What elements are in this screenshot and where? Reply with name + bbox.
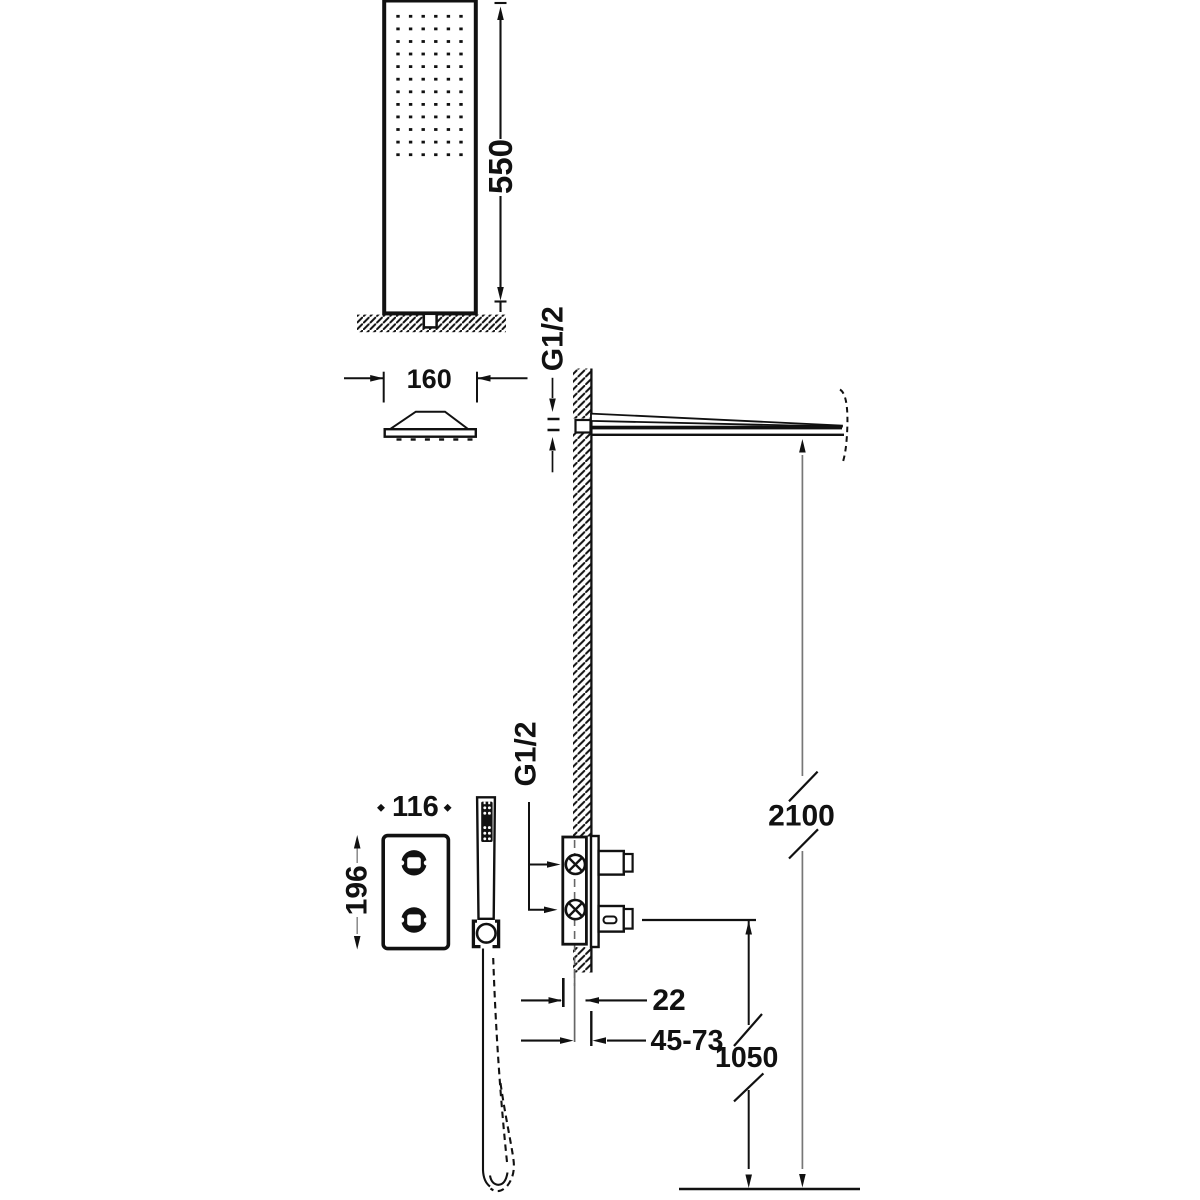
svg-text:45-73: 45-73	[651, 1025, 724, 1057]
svg-text:116: 116	[392, 791, 439, 823]
svg-text:22: 22	[652, 984, 685, 1017]
svg-text:G1/2: G1/2	[510, 721, 543, 786]
svg-text:550: 550	[482, 139, 519, 194]
svg-text:G1/2: G1/2	[537, 306, 570, 371]
svg-text:1050: 1050	[715, 1042, 778, 1074]
svg-text:196: 196	[341, 865, 374, 915]
svg-text:2100: 2100	[768, 799, 835, 832]
svg-text:160: 160	[407, 364, 452, 394]
